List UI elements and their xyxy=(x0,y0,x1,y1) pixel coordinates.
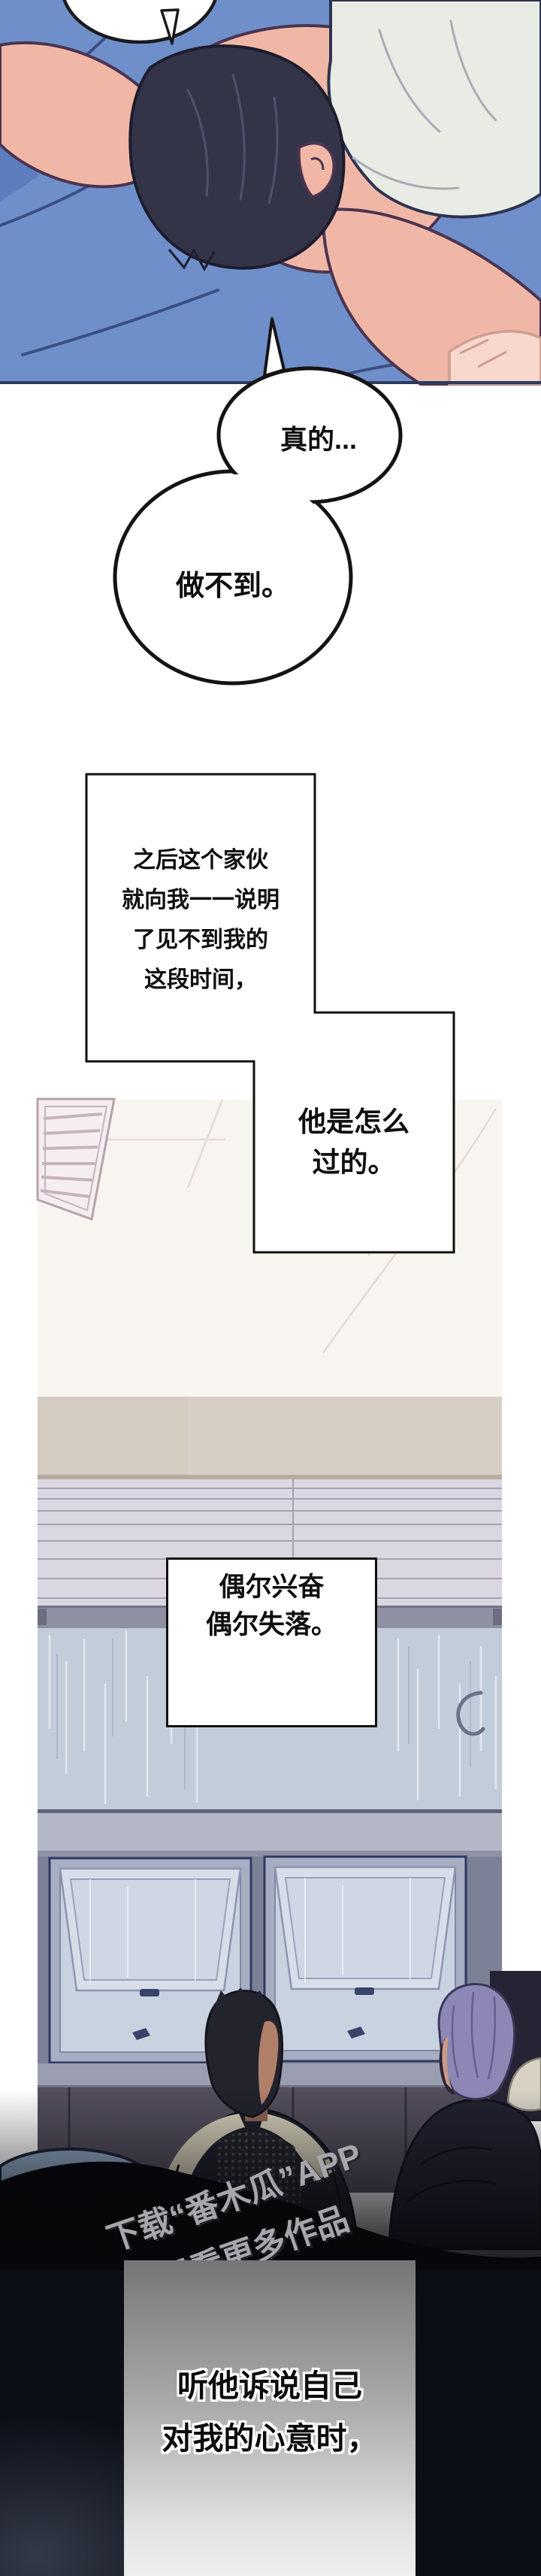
narration-box3: 偶尔兴奋 偶尔失落。 xyxy=(166,1557,377,1727)
narration-line: 偶尔兴奋 xyxy=(168,1569,375,1606)
narration-box2-text: 他是怎么 过的。 xyxy=(254,1102,454,1183)
bubble1-text: 真的... xyxy=(228,418,409,457)
narration-line: 了见不到我的 xyxy=(86,920,315,960)
narration-line: 这段时间， xyxy=(86,960,315,1000)
window-header-beam xyxy=(38,1809,502,1857)
narration-box4-text: 听他诉说自己 对我的心意时， xyxy=(124,2260,416,2465)
narration-line: 听他诉说自己 xyxy=(124,2360,416,2412)
narration-box3-text: 偶尔兴奋 偶尔失落。 xyxy=(168,1560,375,1644)
narration-line: 就向我一一说明 xyxy=(86,880,315,920)
purple-hair xyxy=(439,1984,514,2099)
narration-line: 过的。 xyxy=(254,1143,454,1183)
comic-artwork: 下载“番木瓜”APP 下载“番木瓜”APP 观看更多作品 观看更多作品 xyxy=(0,0,541,2576)
webtoon-page: 下载“番木瓜”APP 下载“番木瓜”APP 观看更多作品 观看更多作品 真的..… xyxy=(0,0,541,2576)
narration-line: 偶尔失落。 xyxy=(168,1606,375,1644)
window-handle xyxy=(140,1989,159,1996)
narration-line: 对我的心意时， xyxy=(124,2412,416,2465)
narration-box4: 听他诉说自己 对我的心意时， xyxy=(124,2260,416,2576)
right-window xyxy=(264,1857,466,2061)
bubble2-text: 做不到。 xyxy=(120,562,346,604)
narration-box1-text: 之后这个家伙 就向我一一说明 了见不到我的 这段时间， xyxy=(86,840,315,1000)
narration-line: 他是怎么 xyxy=(254,1102,454,1143)
narration-line: 之后这个家伙 xyxy=(86,840,315,880)
window-handle xyxy=(355,1987,374,1995)
